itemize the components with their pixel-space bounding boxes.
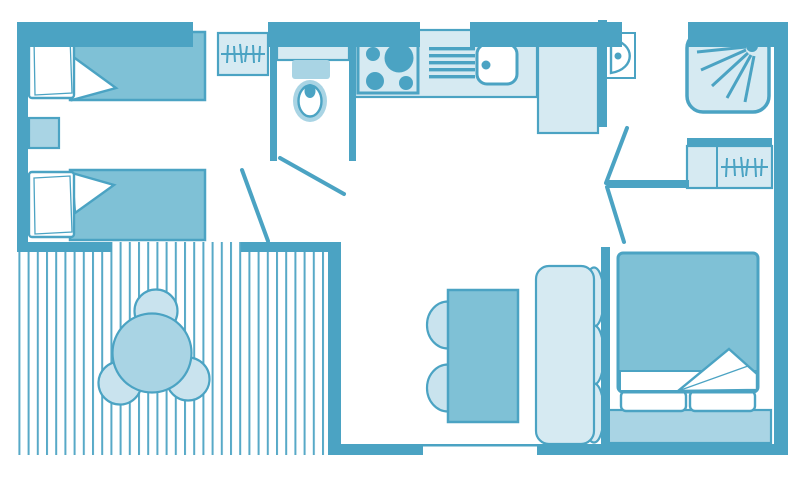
wall-toilet-right [349, 32, 356, 161]
hall-wardrobe [687, 146, 772, 188]
nightstand [29, 118, 59, 148]
wall-master-top [607, 180, 689, 188]
floor-plan-canvas [0, 0, 796, 480]
wall-bottom-right [537, 444, 788, 455]
wall-top-1 [17, 22, 193, 47]
pillow [690, 391, 755, 411]
cistern [292, 60, 330, 79]
wall-top-2 [268, 22, 420, 47]
tall-unit-fridge [538, 32, 598, 133]
wall-toilet-left [270, 32, 277, 161]
pillow [621, 391, 686, 411]
twin-bedroom-door [242, 170, 268, 241]
wall-right [774, 22, 788, 455]
wall-wardrobe-top [687, 138, 772, 146]
sink-icon [477, 44, 517, 84]
toilet-icon [293, 80, 327, 122]
wall-bottom-left [328, 444, 423, 455]
floor-plan-svg [0, 0, 796, 480]
wall-terrace-top-left [17, 242, 112, 252]
wall-kitchen-stub [598, 20, 607, 127]
dining-table [448, 290, 518, 422]
twin-bedroom [29, 32, 268, 240]
wall-left [17, 22, 28, 252]
master-bedroom-door-upper [606, 128, 627, 183]
patio-door-threshold [423, 444, 537, 447]
doors [242, 128, 627, 242]
sofa-base [536, 266, 594, 444]
headboard [608, 410, 771, 443]
wardrobe-hangers [218, 33, 268, 75]
washbasin-drain [615, 53, 622, 60]
wall-terrace-right [328, 242, 341, 455]
pillow [29, 172, 74, 237]
living-dining [427, 266, 604, 444]
toilet-flush [305, 84, 316, 98]
master-bedroom-door-lower [607, 187, 624, 242]
deck-floor-doorway [112, 242, 241, 252]
wall-terrace-top-right [241, 242, 341, 252]
bench-sofa [536, 266, 604, 444]
toilet-door [280, 158, 344, 194]
terrace-round-table [113, 314, 192, 393]
terrace-deck [17, 242, 341, 455]
wall-master-left [601, 247, 610, 455]
master-bedroom [608, 253, 771, 443]
wall-top-4 [688, 22, 788, 47]
